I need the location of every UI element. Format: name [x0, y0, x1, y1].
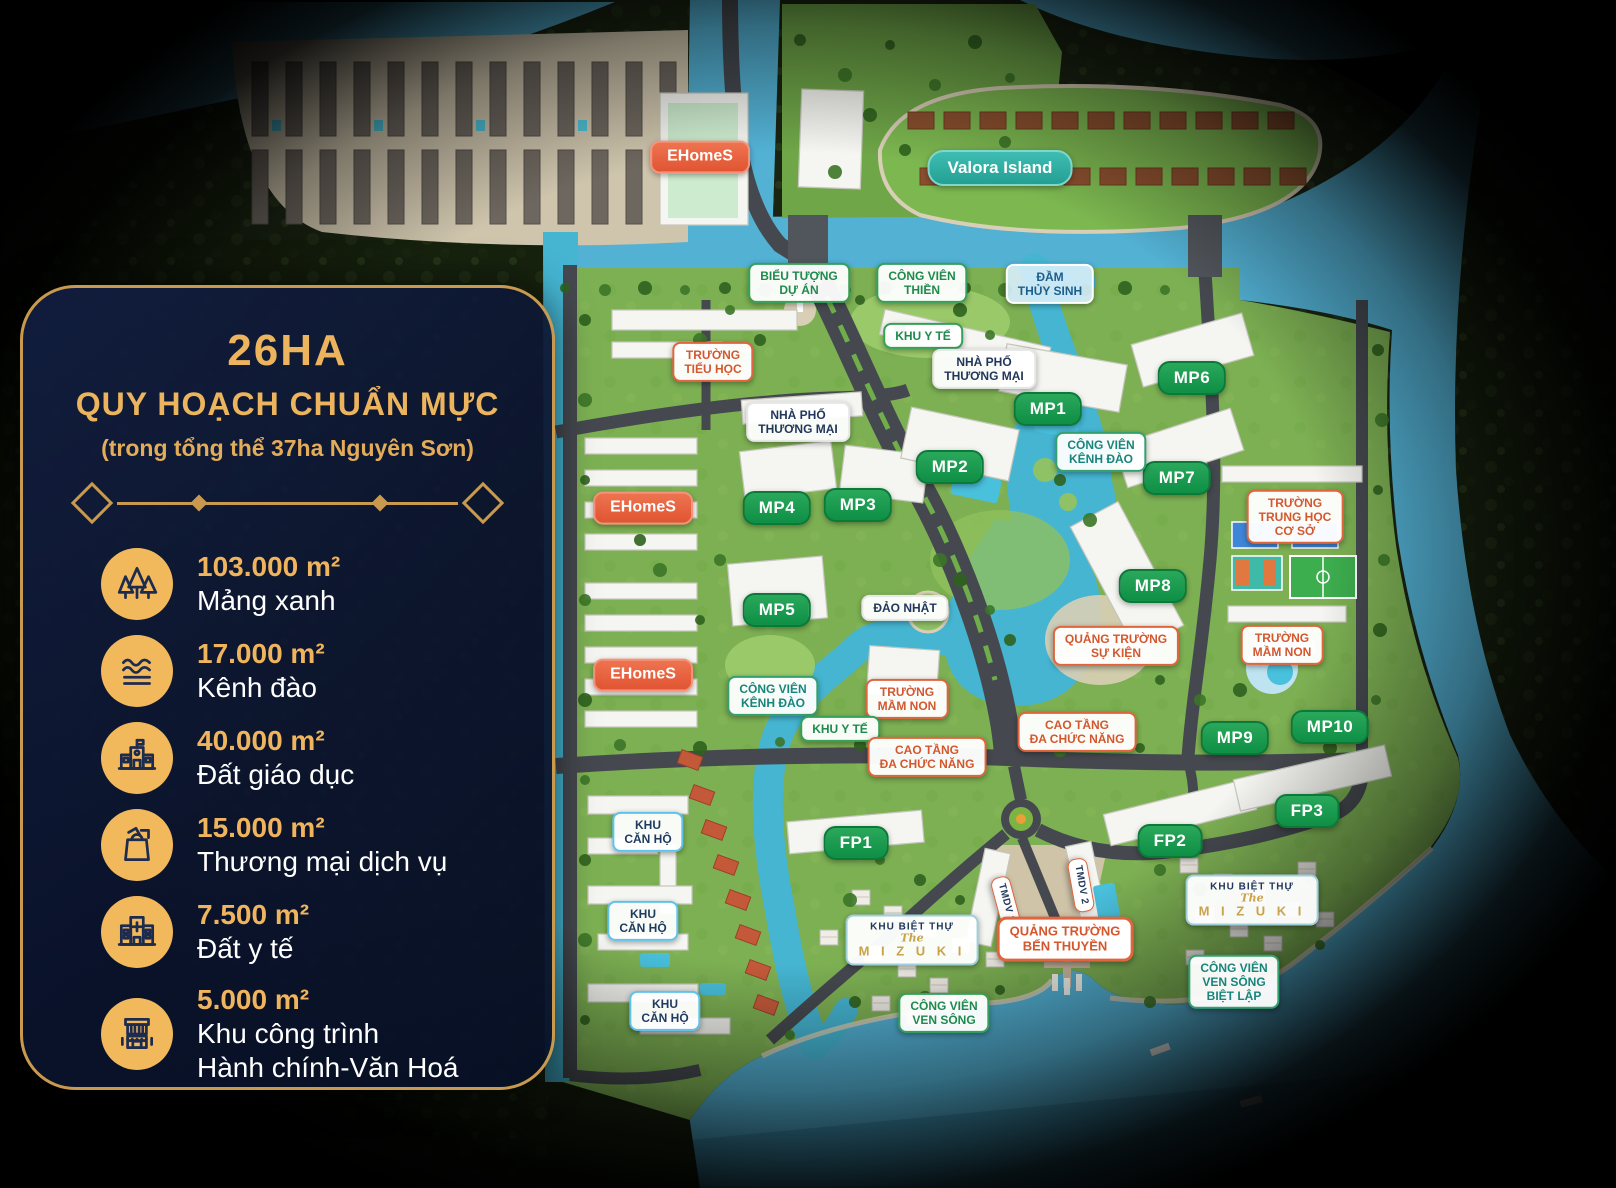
shopping-bag-icon — [101, 809, 173, 881]
map-label-nha-pho-thuong-mai-1: NHÀ PHỐ THƯƠNG MẠI — [932, 349, 1036, 389]
stat-label: Thương mại dịch vụ — [197, 845, 447, 879]
map-label-cong-vien-thien: CÔNG VIÊN THIỀN — [876, 263, 967, 303]
diamond-ornament-small-right — [371, 495, 388, 512]
stat-row-3: 40.000 m²Đất giáo dục — [101, 722, 516, 794]
stats-list: 103.000 m²Mảng xanh17.000 m²Kênh đào40.0… — [59, 548, 516, 1085]
map-label-cong-vien-ven-song-biet-lap: CÔNG VIÊN VEN SÔNG BIỆT LẬP — [1188, 955, 1279, 1009]
map-label-khu-biet-thu-mizuki-2: KHU BIỆT THỰTheM I Z U K I — [1186, 874, 1319, 925]
stat-label: Kênh đào — [197, 671, 325, 705]
map-label-mp3: MP3 — [824, 488, 892, 522]
map-label-truong-mam-non-1: TRƯỜNG MẦM NON — [1241, 625, 1324, 665]
map-label-truong-trung-hoc-co-so: TRƯỜNG TRUNG HỌC CƠ SỞ — [1247, 490, 1344, 544]
panel-subtitle: (trong tổng thể 37ha Nguyên Sơn) — [59, 435, 516, 462]
map-label-khu-can-ho-2: KHU CĂN HỘ — [607, 901, 678, 941]
map-label-khu-y-te-2: KHU Y TẾ — [800, 716, 880, 742]
map-label-dao-nhat: ĐẢO NHẬT — [861, 595, 948, 621]
info-panel: 26HA QUY HOẠCH CHUẨN MỰC (trong tổng thể… — [20, 285, 555, 1090]
hospital-icon — [101, 896, 173, 968]
stat-value: 40.000 m² — [197, 724, 354, 758]
map-label-ehomes-1: EHomeS — [650, 141, 750, 174]
map-label-khu-can-ho-3: KHU CĂN HỘ — [629, 991, 700, 1031]
stat-label: Khu công trình Hành chính-Văn Hoá — [197, 1017, 459, 1085]
stat-row-2: 17.000 m²Kênh đào — [101, 635, 516, 707]
stat-label: Đất y tế — [197, 932, 309, 966]
map-label-truong-mam-non-2: TRƯỜNG MẦM NON — [866, 679, 949, 719]
map-label-tmdv-2: TMDV 2 — [1067, 857, 1096, 913]
map-label-khu-biet-thu-mizuki-1: KHU BIỆT THỰTheM I Z U K I — [846, 914, 979, 965]
stat-row-4: 15.000 m²Thương mại dịch vụ — [101, 809, 516, 881]
masterplan-scene: EHomeSValora IslandBIỂU TƯỢNG DỰ ÁNCÔNG … — [0, 0, 1616, 1188]
map-label-mp9: MP9 — [1201, 721, 1269, 755]
map-label-mp2: MP2 — [916, 450, 984, 484]
map-label-valora-island: Valora Island — [928, 150, 1073, 186]
map-label-cao-tang-da-chuc-nang-1: CAO TẦNG ĐA CHỨC NĂNG — [868, 737, 987, 777]
stat-label: Mảng xanh — [197, 584, 340, 618]
map-label-quang-truong-ben-thuyen: QUẢNG TRƯỜNG BẾN THUYỀN — [997, 917, 1134, 962]
stat-value: 103.000 m² — [197, 550, 340, 584]
stat-label: Đất giáo dục — [197, 758, 354, 792]
map-label-mp10: MP10 — [1291, 710, 1369, 744]
map-label-truong-tieu-hoc: TRƯỜNG TIỂU HỌC — [672, 342, 753, 382]
map-label-mp4: MP4 — [743, 491, 811, 525]
map-label-cao-tang-da-chuc-nang-2: CAO TẦNG ĐA CHỨC NĂNG — [1018, 712, 1137, 752]
stat-row-5: 7.500 m²Đất y tế — [101, 896, 516, 968]
waves-icon — [101, 635, 173, 707]
map-label-cong-vien-kenh-dao-2: CÔNG VIÊN KÊNH ĐÀO — [727, 676, 818, 716]
map-label-mp1: MP1 — [1014, 392, 1082, 426]
trees-icon — [101, 548, 173, 620]
gold-divider — [77, 488, 498, 518]
map-label-khu-can-ho-1: KHU CĂN HỘ — [612, 812, 683, 852]
map-label-mp6: MP6 — [1158, 361, 1226, 395]
stat-row-6: 5.000 m²Khu công trình Hành chính-Văn Ho… — [101, 983, 516, 1085]
map-label-fp1: FP1 — [824, 826, 889, 860]
map-label-quang-truong-su-kien: QUẢNG TRƯỜNG SỰ KIỆN — [1053, 626, 1179, 666]
map-label-ehomes-3: EHomeS — [593, 659, 693, 692]
map-label-bieu-tuong-du-an: BIỂU TƯỢNG DỰ ÁN — [748, 263, 850, 303]
map-label-khu-y-te-1: KHU Y TẾ — [883, 323, 963, 349]
map-label-cong-vien-kenh-dao-1: CÔNG VIÊN KÊNH ĐÀO — [1055, 432, 1146, 472]
map-label-mp7: MP7 — [1143, 461, 1211, 495]
panel-title: QUY HOẠCH CHUẨN MỰC — [59, 386, 516, 423]
diamond-ornament-small-left — [190, 495, 207, 512]
diamond-ornament-left — [71, 482, 113, 524]
stat-value: 17.000 m² — [197, 637, 325, 671]
map-label-ehomes-2: EHomeS — [593, 492, 693, 525]
map-label-cong-vien-ven-song: CÔNG VIÊN VEN SÔNG — [898, 993, 989, 1033]
civic-building-icon — [101, 998, 173, 1070]
map-label-mp8: MP8 — [1119, 569, 1187, 603]
stat-row-1: 103.000 m²Mảng xanh — [101, 548, 516, 620]
panel-area-title: 26HA — [59, 326, 516, 376]
stat-value: 15.000 m² — [197, 811, 447, 845]
map-label-nha-pho-thuong-mai-2: NHÀ PHỐ THƯƠNG MẠI — [746, 402, 850, 442]
stat-value: 7.500 m² — [197, 898, 309, 932]
stat-value: 5.000 m² — [197, 983, 459, 1017]
map-label-dam-thuy-sinh: ĐẦM THỦY SINH — [1006, 264, 1094, 304]
diamond-ornament-right — [462, 482, 504, 524]
school-icon — [101, 722, 173, 794]
map-label-fp3: FP3 — [1275, 794, 1340, 828]
map-label-fp2: FP2 — [1138, 824, 1203, 858]
map-label-mp5: MP5 — [743, 593, 811, 627]
